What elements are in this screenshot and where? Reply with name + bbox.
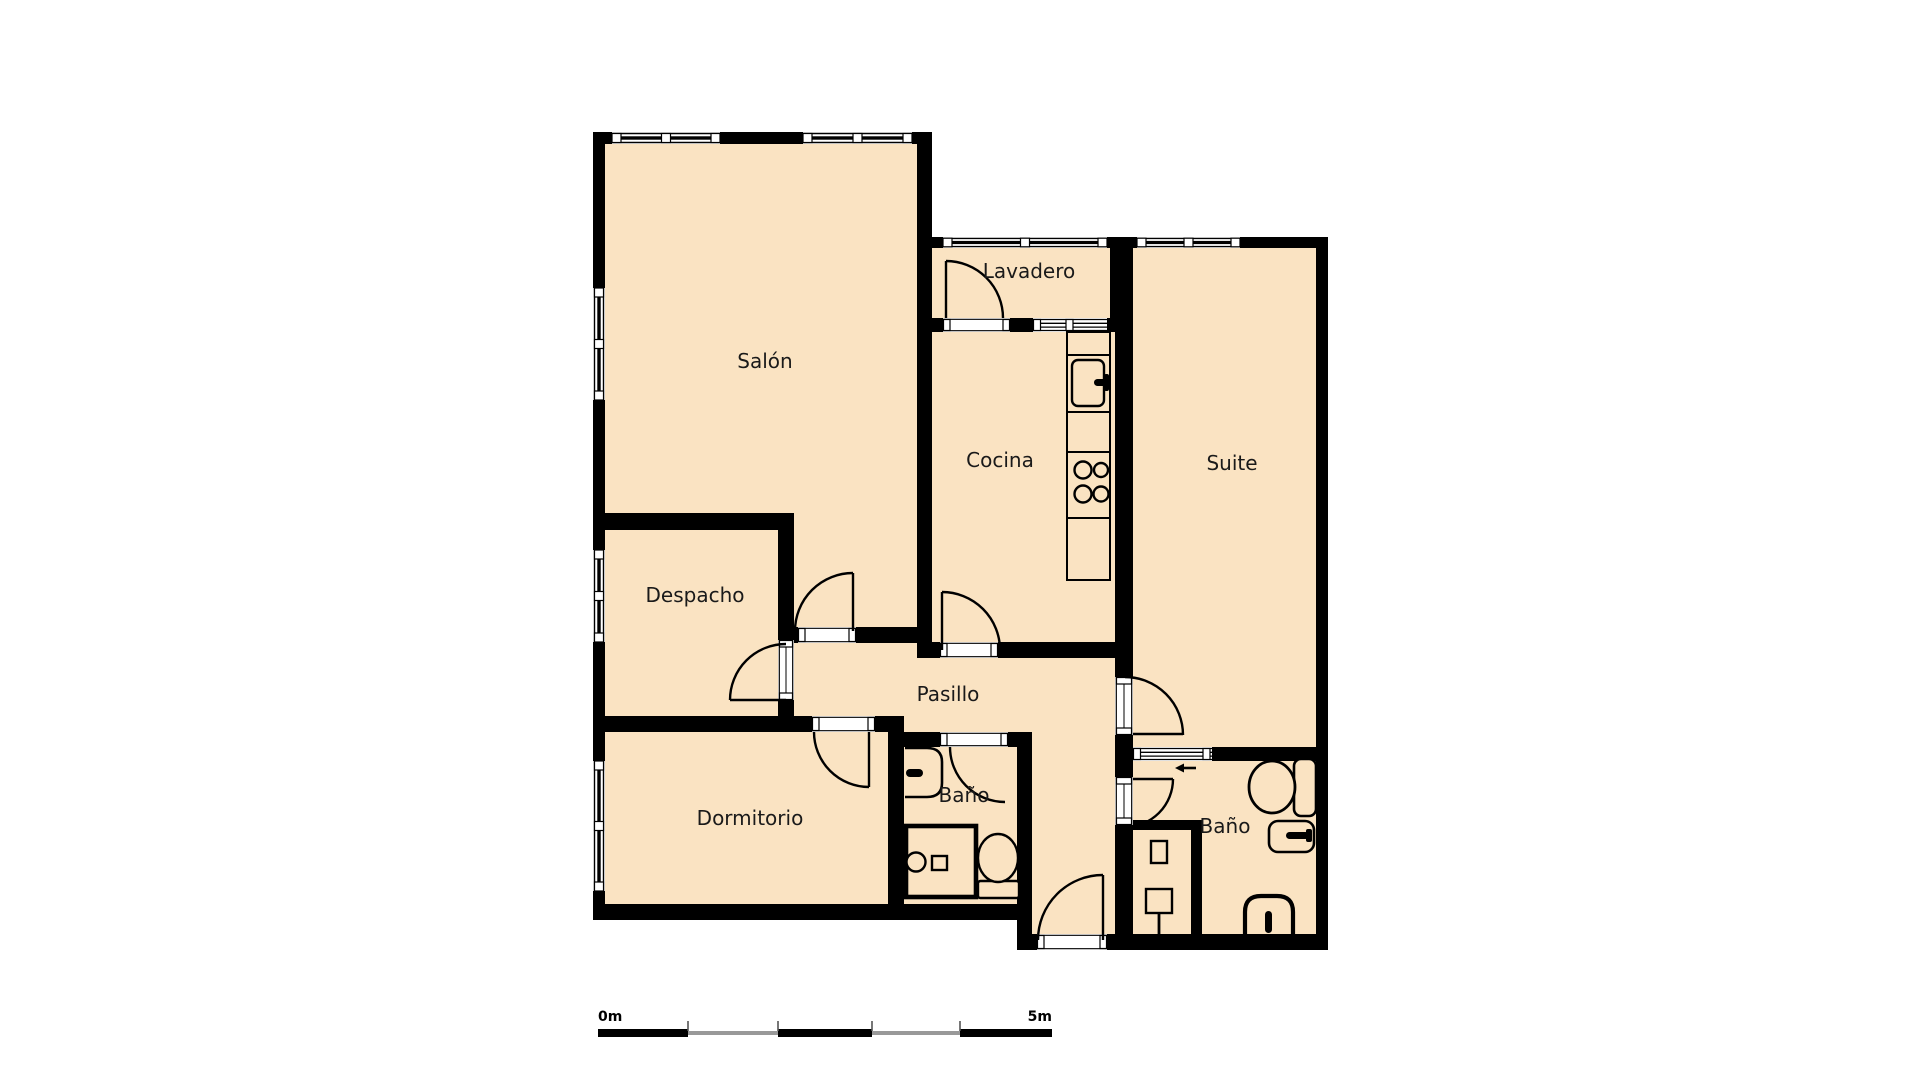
wall-salon-despacho xyxy=(593,513,794,530)
wall-suite-left xyxy=(1115,332,1133,950)
scale-segment-1 xyxy=(598,1029,688,1037)
bathroom1-toilet xyxy=(978,834,1019,898)
scale-segment-3 xyxy=(778,1029,872,1037)
window-salon-left xyxy=(593,288,605,400)
label-cocina: Cocina xyxy=(966,448,1034,472)
scale-label-start: 0m xyxy=(598,1009,622,1025)
opening-entrance xyxy=(1037,934,1107,950)
window-suite-top xyxy=(1137,237,1240,248)
label-suite: Suite xyxy=(1206,451,1257,475)
window-suite-bano2 xyxy=(1133,747,1212,761)
scale-segment-4 xyxy=(872,1031,960,1035)
bathroom2-toilet xyxy=(1249,759,1316,816)
label-pasillo: Pasillo xyxy=(917,682,980,706)
window-salon-top-2 xyxy=(803,132,912,144)
label-dormitorio: Dormitorio xyxy=(697,806,804,830)
scale-label-end: 5m xyxy=(1028,1009,1052,1025)
scale-segment-5 xyxy=(960,1029,1052,1037)
window-lavadero-top xyxy=(943,237,1107,248)
label-lavadero: Lavadero xyxy=(983,259,1076,283)
scale-segment-2 xyxy=(688,1031,778,1035)
floor-plan-svg: Salón Lavadero Cocina Suite Despacho Pas… xyxy=(0,0,1920,1080)
label-despacho: Despacho xyxy=(646,583,745,607)
wall-salon-right xyxy=(917,132,932,658)
label-bano-suite: Baño xyxy=(1200,814,1251,838)
floor-plan-page: Salón Lavadero Cocina Suite Despacho Pas… xyxy=(0,0,1920,1080)
window-lavadero-cocina xyxy=(1033,318,1107,332)
window-salon-top-1 xyxy=(612,132,720,144)
wall-right xyxy=(1316,237,1328,950)
opening-bano2 xyxy=(1115,777,1133,825)
label-salon: Salón xyxy=(737,349,792,373)
opening-salon-pasillo xyxy=(798,627,856,643)
opening-lavadero xyxy=(943,318,1010,332)
opening-suite xyxy=(1115,677,1133,735)
opening-cocina xyxy=(940,642,998,658)
window-despacho-left xyxy=(593,550,605,642)
opening-despacho xyxy=(778,640,794,700)
scale-bar: 0m 5m xyxy=(598,1009,1052,1037)
opening-dormitorio xyxy=(812,716,875,732)
label-bano-pasillo: Baño xyxy=(939,783,990,807)
wall-lavadero-suite-divider xyxy=(1110,237,1133,332)
wall-bottom-left xyxy=(593,904,1032,920)
opening-bano1 xyxy=(940,732,1008,747)
window-dormitorio-left xyxy=(593,761,605,891)
